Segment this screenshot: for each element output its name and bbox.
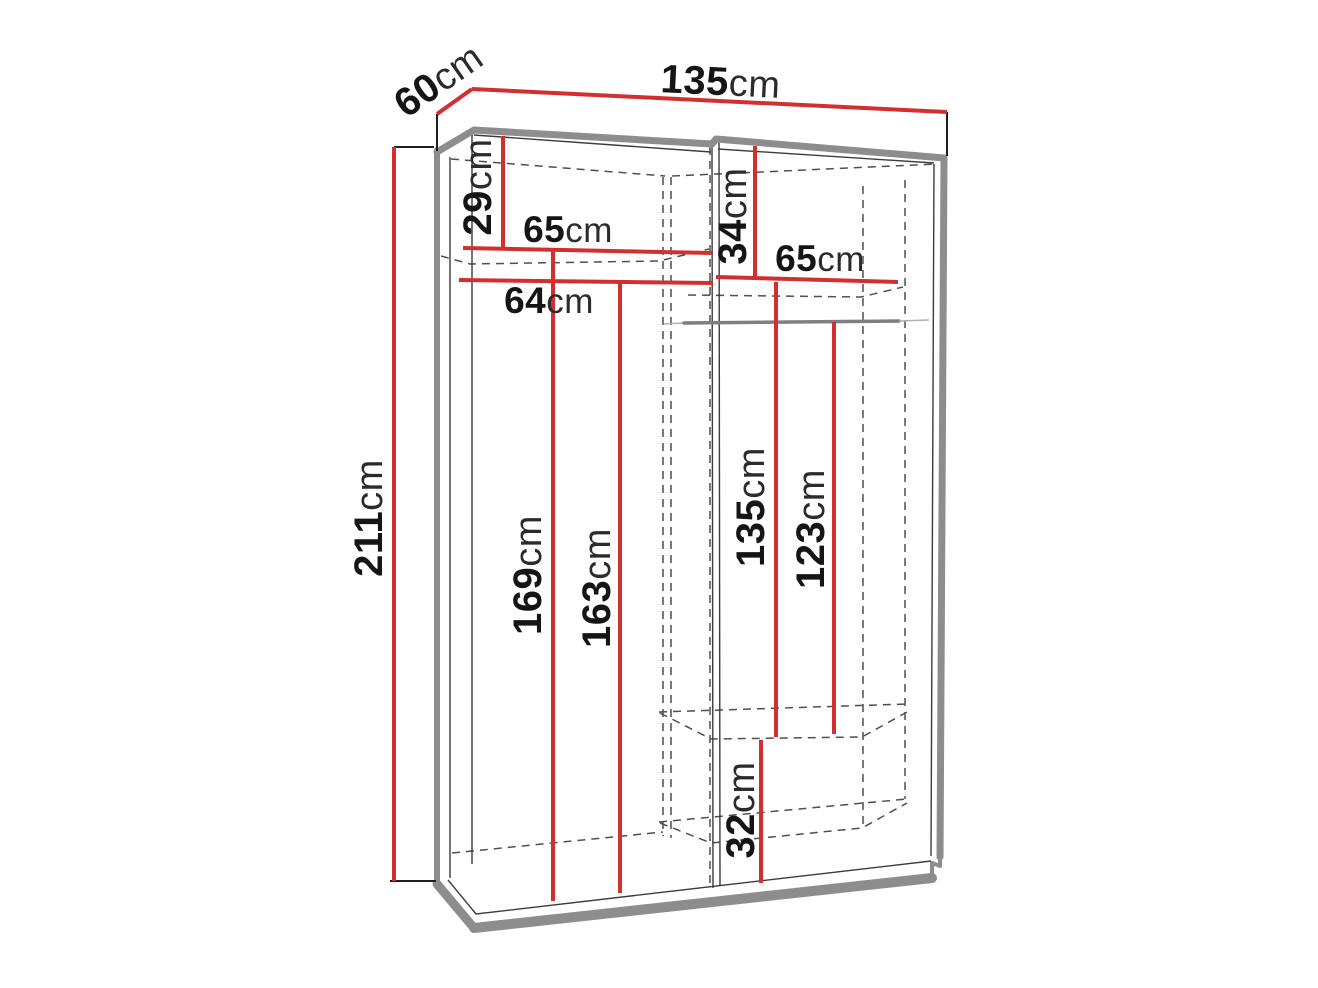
- label-left-inner-width: 64cm: [504, 280, 594, 321]
- label-left-top-gap: 29cm: [456, 138, 500, 235]
- label-right-upper-height: 135cm: [729, 447, 773, 567]
- frame-right-edge: [940, 158, 944, 857]
- label-left-height-back: 169cm: [506, 515, 550, 635]
- label-left-shelf-width: 65cm: [523, 209, 613, 250]
- label-left-height-front: 163cm: [575, 528, 619, 648]
- hanging-rod-end-left: [664, 323, 684, 324]
- label-overall-height: 211cm: [347, 459, 391, 577]
- label-overall-width: 135cm: [660, 57, 782, 107]
- hanging-rod-bar: [684, 321, 899, 323]
- hanging-rod-end-right: [899, 320, 929, 321]
- label-right-rod-clearance: 123cm: [789, 469, 833, 589]
- label-right-top-gap: 34cm: [711, 167, 755, 264]
- label-right-shelf-width: 65cm: [775, 238, 865, 279]
- label-right-base-height: 32cm: [719, 761, 763, 858]
- diagram-canvas: 135cm 60cm 211cm 29cm 65cm 64cm 169cm 16…: [0, 0, 1318, 988]
- wardrobe-dimension-diagram: 135cm 60cm 211cm 29cm 65cm 64cm 169cm 16…: [0, 0, 1318, 988]
